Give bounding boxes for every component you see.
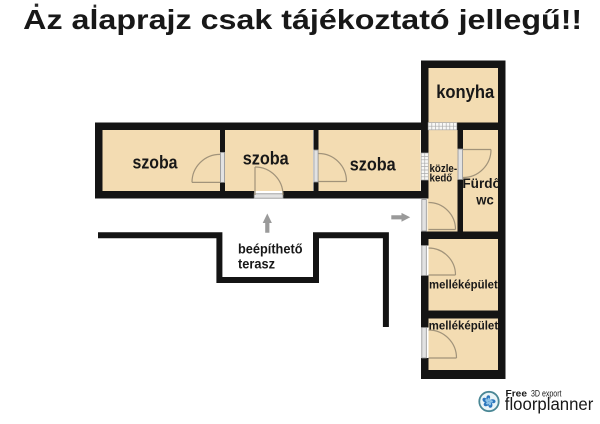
svg-text:szoba: szoba	[243, 149, 290, 169]
svg-text:szoba: szoba	[350, 155, 397, 175]
svg-text:melléképület: melléképület	[429, 280, 498, 292]
svg-text:melléképület: melléképület	[429, 320, 499, 332]
svg-text:floorplanner: floorplanner	[505, 394, 594, 414]
svg-text:kedő: kedő	[430, 172, 453, 184]
svg-text:beépíthető: beépíthető	[238, 242, 303, 257]
svg-text:konyha: konyha	[436, 82, 495, 102]
svg-text:wc: wc	[475, 193, 494, 208]
svg-text:szoba: szoba	[133, 152, 179, 172]
svg-text:terasz: terasz	[238, 257, 275, 272]
svg-text:Az alaprajz csak tájékoztató j: Az alaprajz csak tájékoztató jellegű!!	[23, 4, 582, 35]
svg-text:Fürdő: Fürdő	[462, 176, 501, 191]
